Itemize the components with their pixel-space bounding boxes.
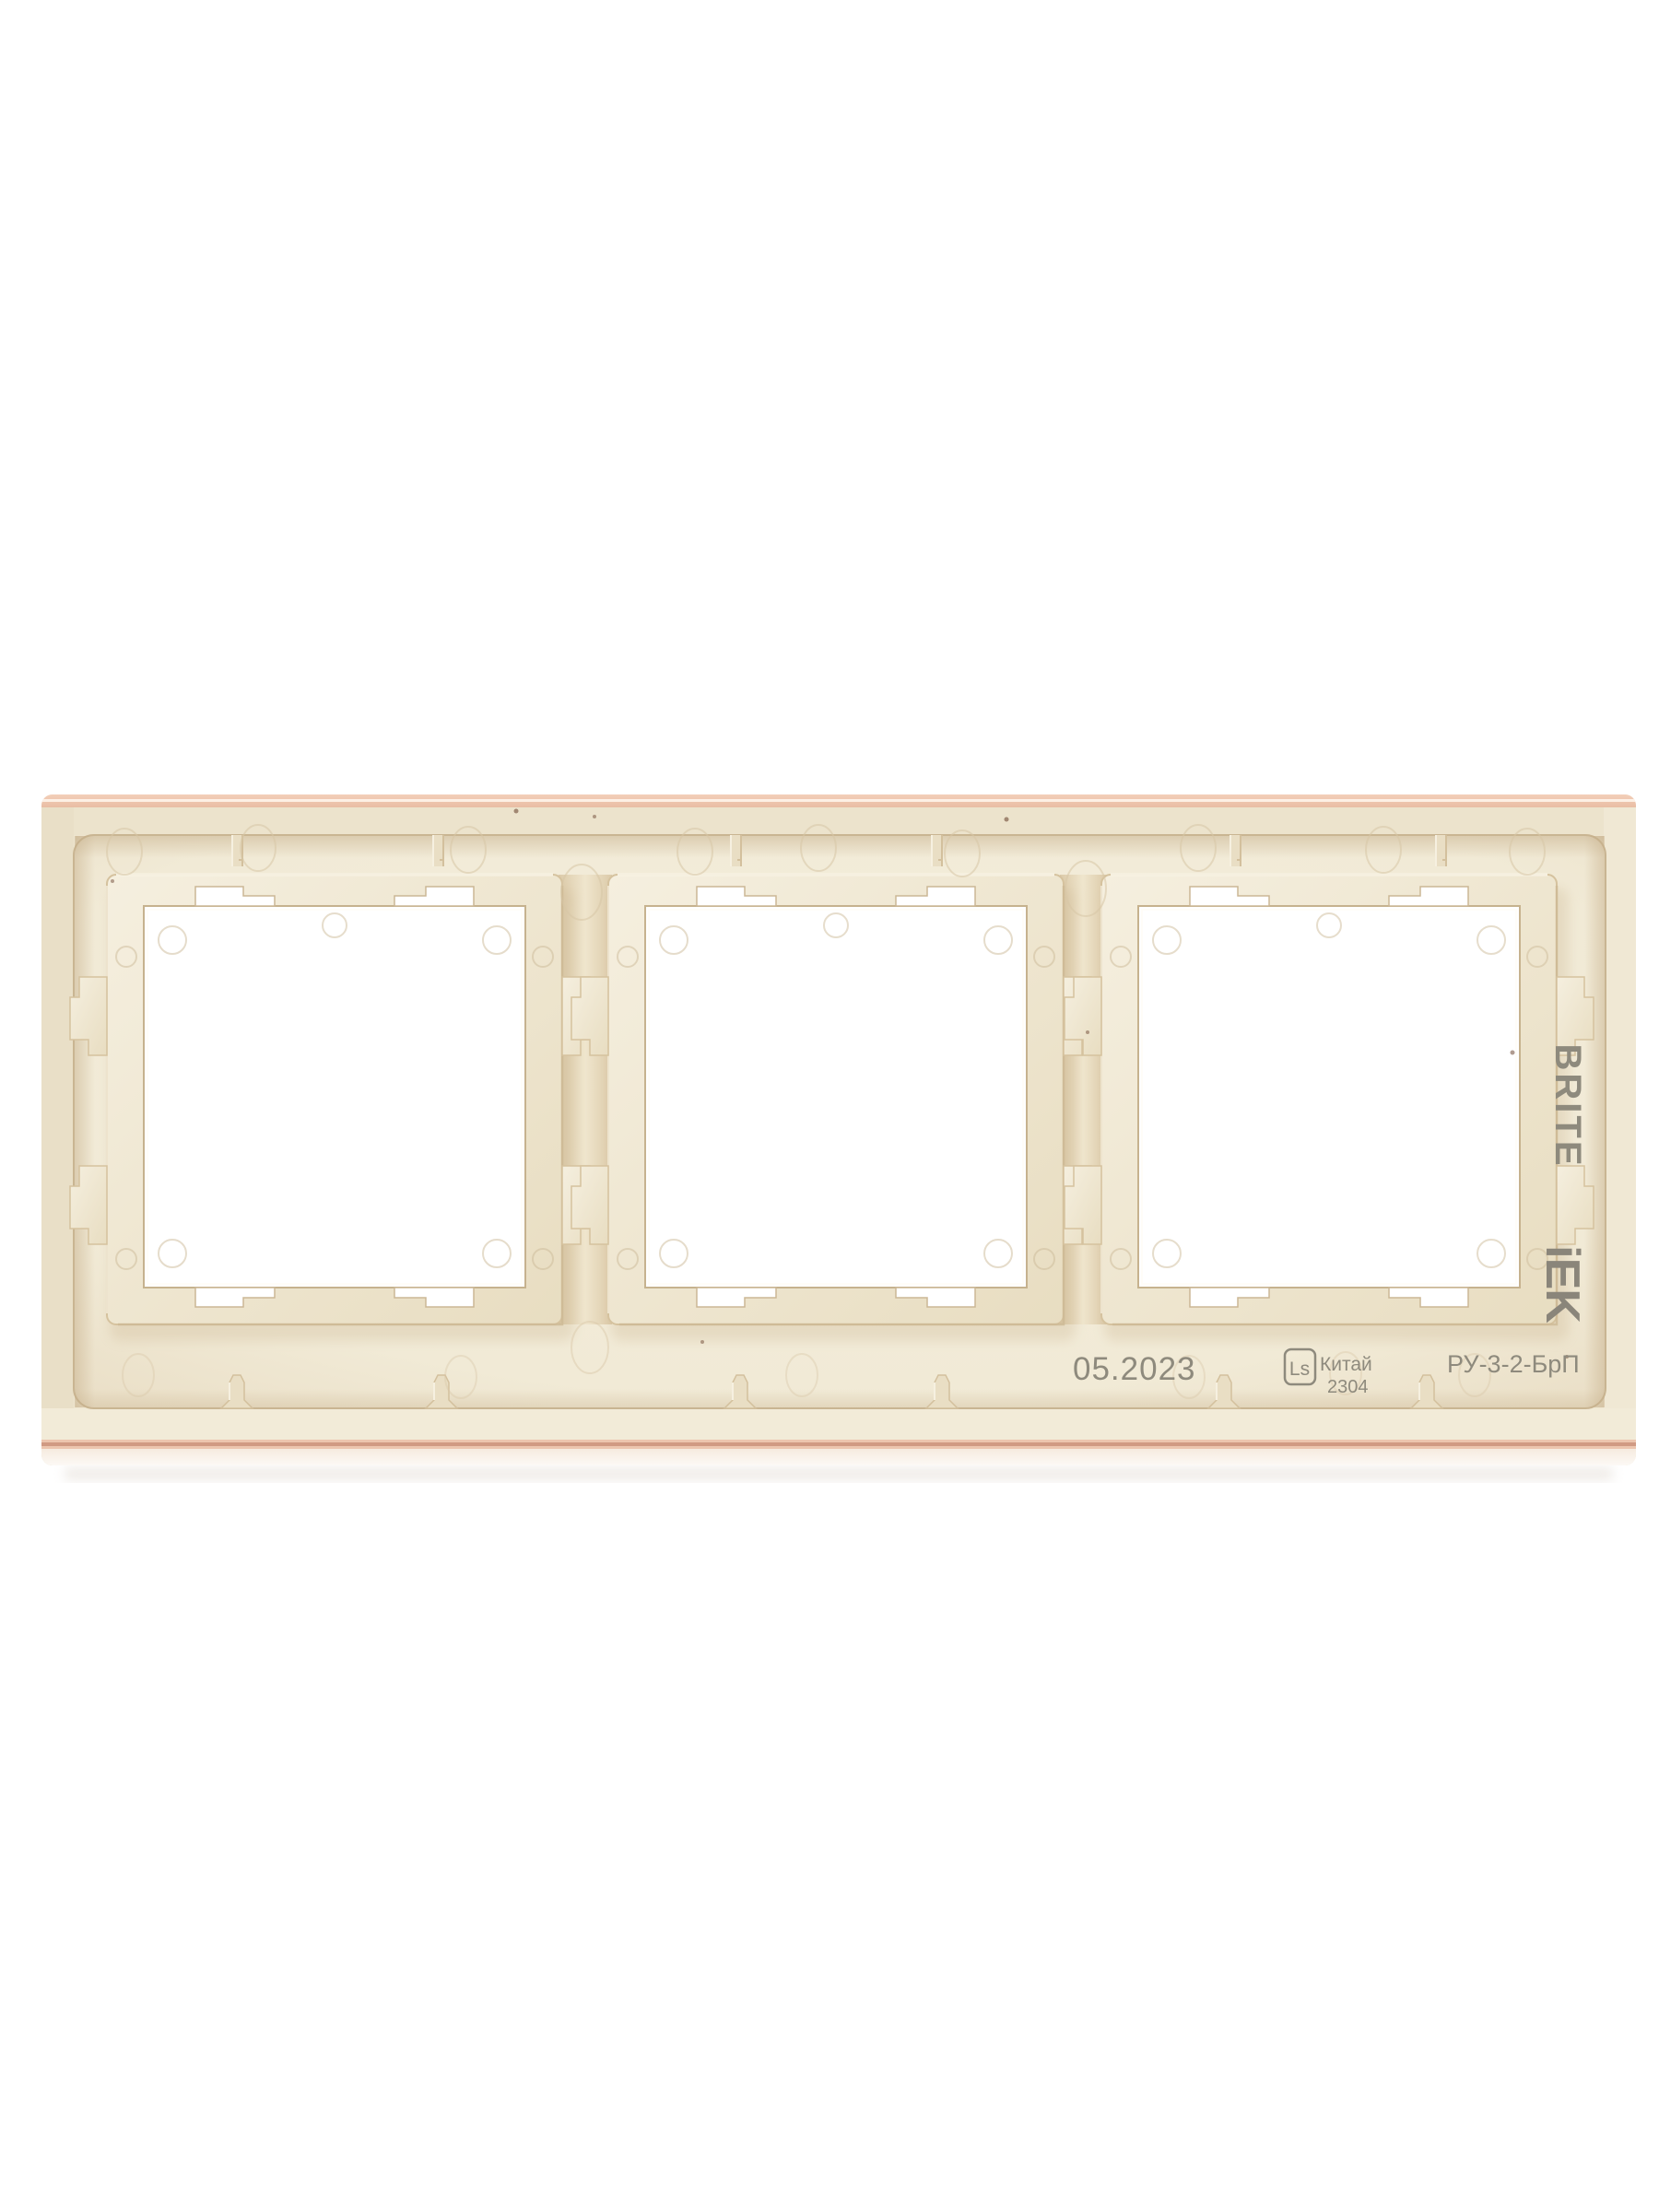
country-marking: Китай <box>1320 1354 1372 1375</box>
field-bottom-shadow <box>76 1389 1604 1407</box>
product-photo: BRITE iEK 05.2023 Ls Китай 2304 РУ-3-2-Б… <box>0 0 1659 2212</box>
mold-insert-badge: Ls <box>1289 1359 1310 1380</box>
gang-window-2 <box>571 875 1100 1324</box>
frame-photo-svg: BRITE iEK 05.2023 Ls Китай 2304 РУ-3-2-Б… <box>0 0 1659 2212</box>
iek-logo: iEK <box>1535 1245 1589 1324</box>
drop-shadow <box>65 1467 1613 1480</box>
rim-left-face <box>41 807 74 1473</box>
field-top-shadow <box>76 836 1604 858</box>
field-left-shadow <box>75 836 95 1407</box>
model-marking: РУ-3-2-БрП <box>1447 1350 1580 1378</box>
rim-right-face <box>1604 807 1636 1473</box>
gang-window-1 <box>70 875 599 1324</box>
frame-back-plate: BRITE iEK 05.2023 Ls Китай 2304 РУ-3-2-Б… <box>41 794 1636 1473</box>
date-code: 05.2023 <box>1073 1351 1196 1387</box>
rim-top-face <box>41 807 1636 835</box>
gang-window-3 <box>1065 875 1594 1324</box>
rim-bottom-face <box>41 1408 1636 1440</box>
bottom-edge-maroon <box>41 1442 1636 1446</box>
top-edge-highlight <box>41 799 1636 802</box>
batch-marking: 2304 <box>1327 1377 1369 1397</box>
brite-engraving: BRITE <box>1547 1044 1588 1169</box>
